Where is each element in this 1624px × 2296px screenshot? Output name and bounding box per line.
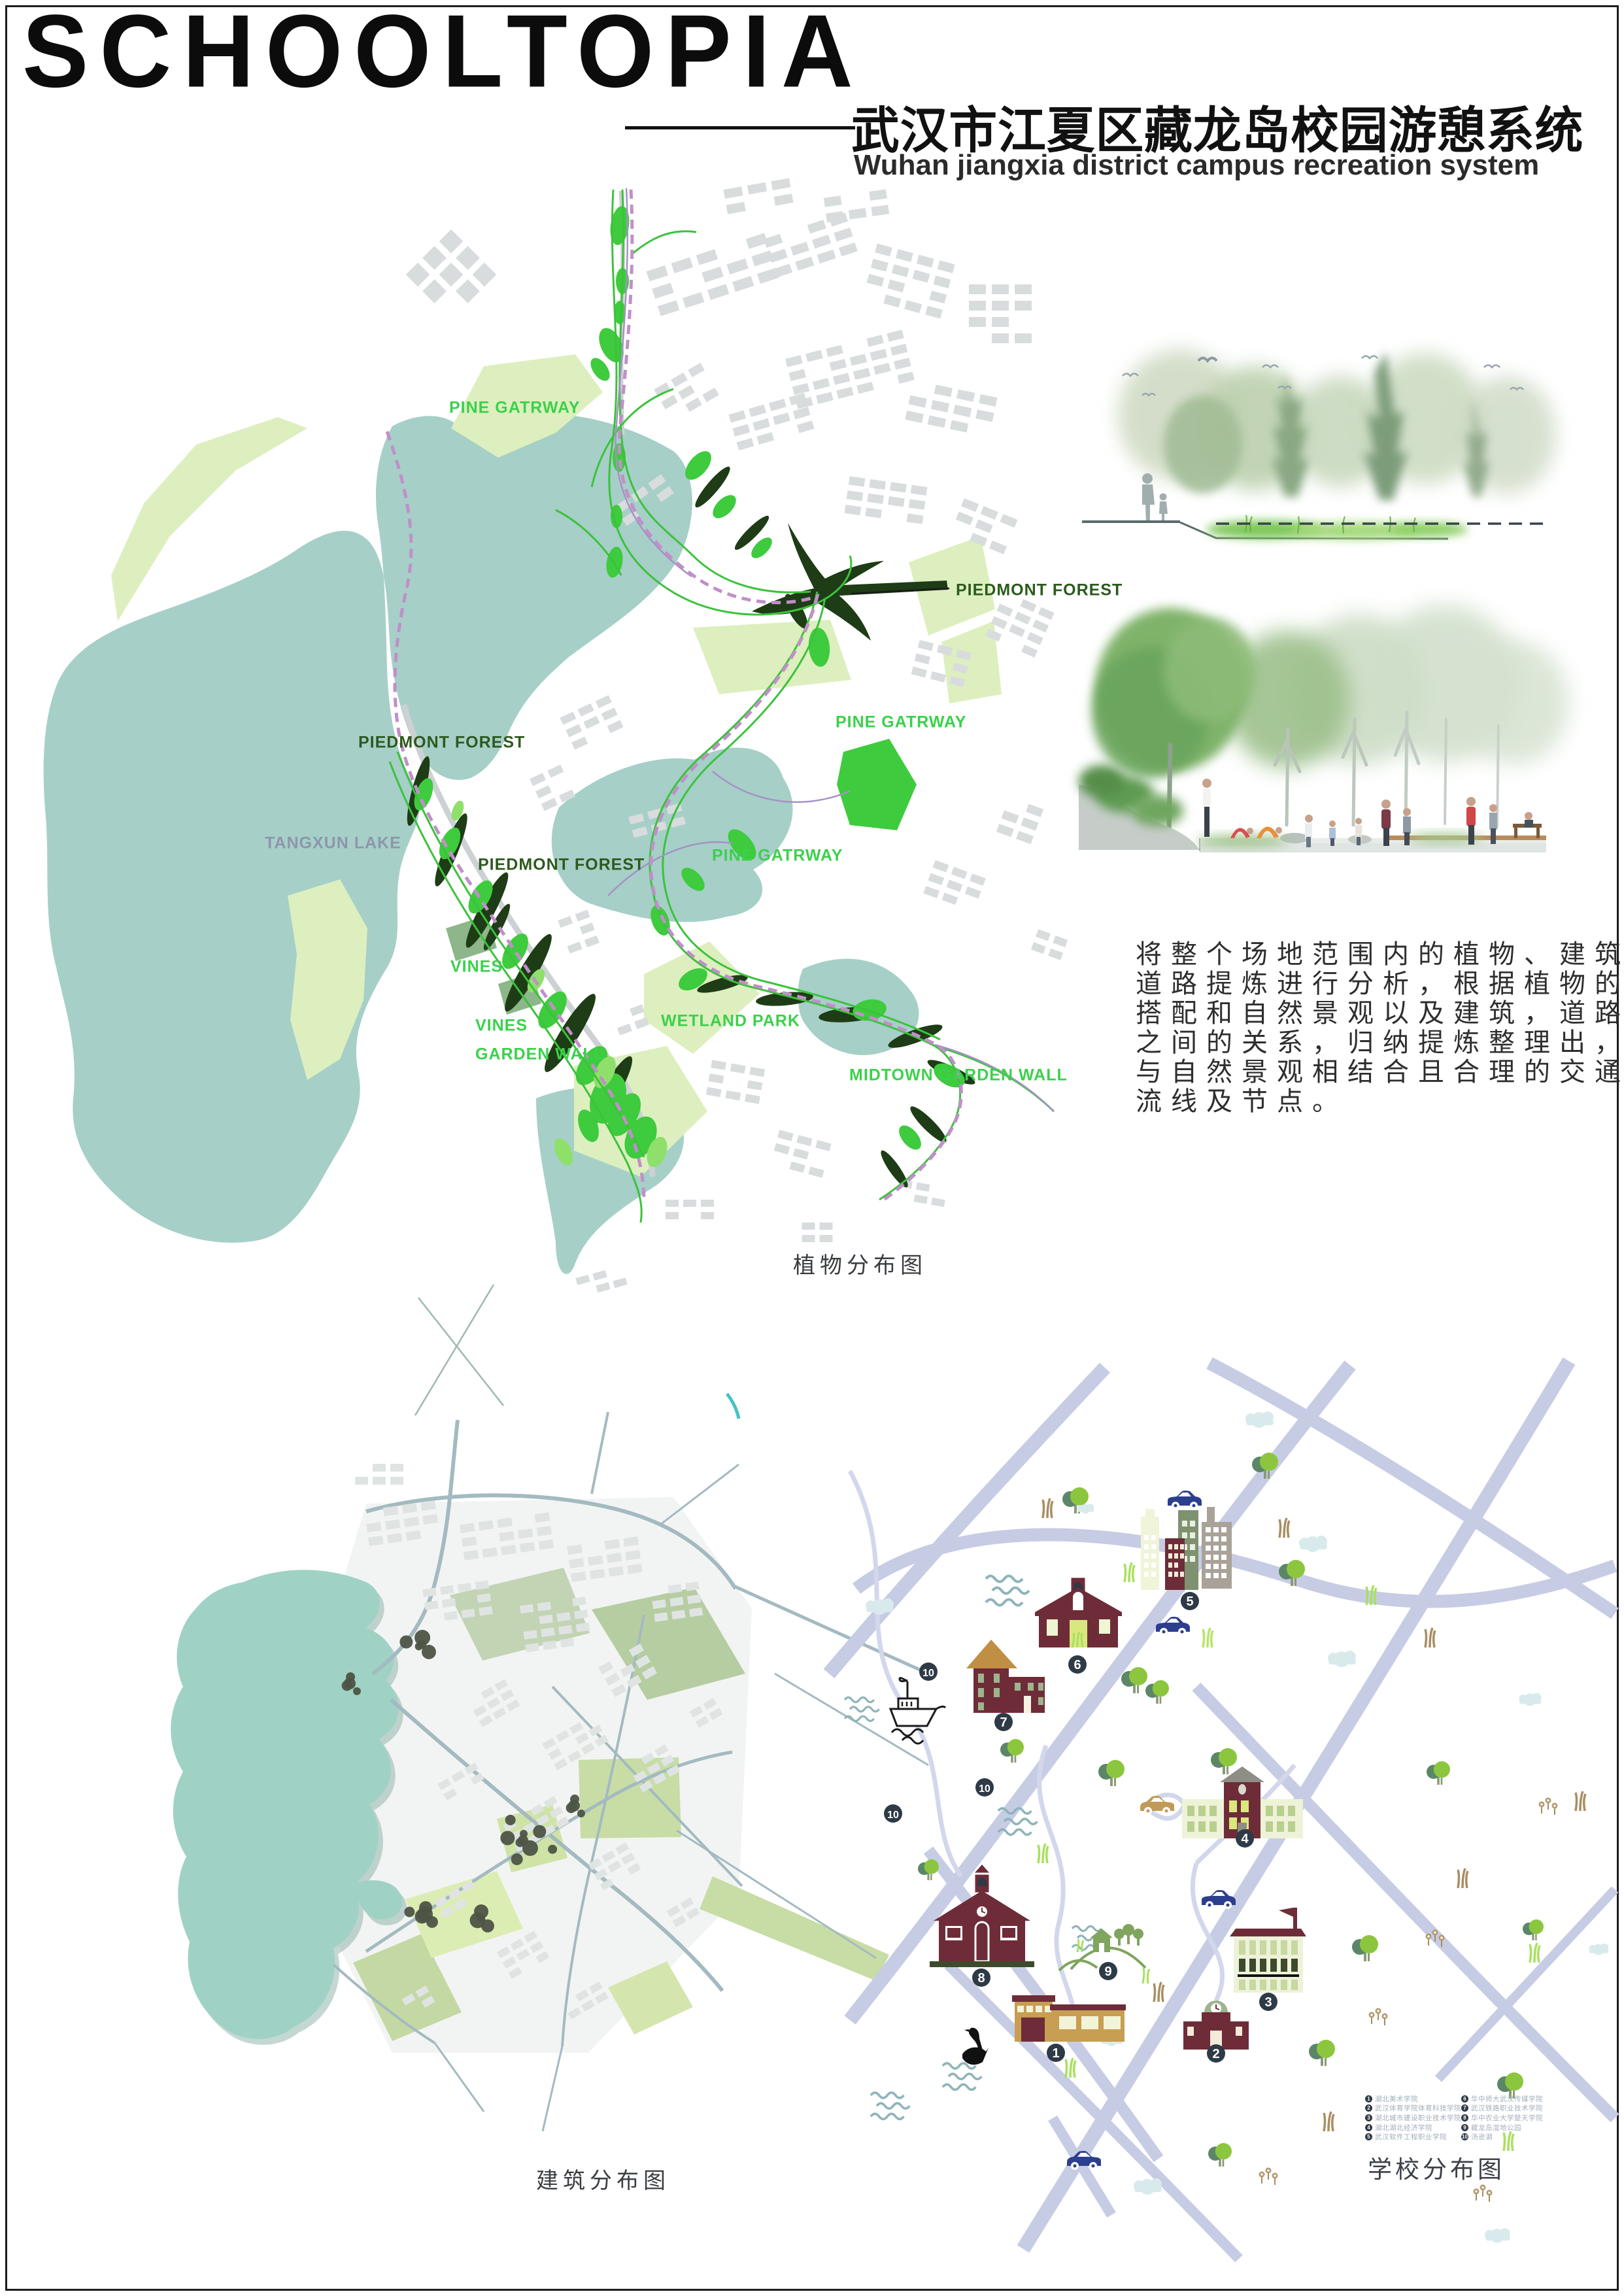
water-waves-icon bbox=[986, 1576, 1029, 1606]
school-7-icon bbox=[966, 1640, 1045, 1713]
grass-icon bbox=[1530, 1943, 1540, 1963]
map-label: MIDTOWN GARDEN WALL bbox=[849, 1066, 1068, 1085]
svg-text:10: 10 bbox=[979, 1783, 990, 1795]
svg-text:3: 3 bbox=[1264, 1995, 1272, 2010]
svg-text:6: 6 bbox=[1074, 1658, 1081, 1672]
tree-canopy bbox=[1118, 350, 1556, 500]
flower-icon bbox=[1369, 2008, 1388, 2026]
tree-icon bbox=[918, 1859, 939, 1880]
grass-icon bbox=[1154, 1982, 1164, 2002]
cloud-icon bbox=[1299, 1536, 1327, 1552]
tree-icon bbox=[1121, 1667, 1147, 1693]
section-rendering-trees bbox=[1082, 333, 1546, 536]
building-block bbox=[802, 1223, 833, 1242]
tree-icon bbox=[1208, 2143, 1232, 2167]
tree-icon bbox=[1000, 1739, 1024, 1763]
legend-item: 8华中农业大学楚天学院 bbox=[1461, 2113, 1548, 2123]
legend-item: 4湖北湖北经济学院 bbox=[1365, 2123, 1452, 2133]
building-block bbox=[969, 284, 1032, 343]
building-block bbox=[996, 797, 1043, 845]
ground-section bbox=[1082, 515, 1546, 539]
map-label: PINE GATRWAY bbox=[712, 847, 843, 866]
tree-icon bbox=[1098, 1760, 1125, 1786]
grass-icon bbox=[1066, 2058, 1075, 2078]
school-1-icon bbox=[1012, 1995, 1126, 2042]
water-waves-icon bbox=[871, 2093, 909, 2119]
tree-icon bbox=[1211, 1748, 1237, 1774]
description-line: 与自然景观相结合且合理的交通 bbox=[1136, 1058, 1593, 1087]
building-block bbox=[647, 233, 779, 316]
building-block bbox=[764, 212, 858, 277]
legend-item: 3湖北城市建设职业技术学院 bbox=[1365, 2113, 1452, 2123]
map-label: PINE GATRWAY bbox=[836, 713, 966, 732]
swan-icon bbox=[962, 2028, 989, 2065]
svg-text:2: 2 bbox=[1212, 2047, 1219, 2061]
grass-icon bbox=[1125, 1562, 1134, 1582]
perspective-rendering-park bbox=[1079, 608, 1546, 866]
building-block bbox=[1031, 929, 1068, 960]
map-label: PIEDMONT FOREST bbox=[358, 734, 525, 752]
school-distribution-map: 123456789101010 bbox=[811, 1360, 1619, 2210]
grass-icon bbox=[1279, 1518, 1289, 1538]
school-6-icon bbox=[1035, 1577, 1122, 1647]
cloud-icon bbox=[1134, 2178, 1162, 2195]
school-2-icon bbox=[1183, 2001, 1249, 2050]
school-legend: 1湖北美术学院2武汉体育学院体育科技学院3湖北城市建设职业技术学院4湖北湖北经济… bbox=[1365, 2094, 1548, 2142]
map-label: WETLAND PARK bbox=[661, 1012, 800, 1031]
building-block bbox=[728, 393, 814, 450]
flower-icon bbox=[1474, 2185, 1493, 2203]
svg-text:10: 10 bbox=[887, 1810, 899, 1821]
building-block bbox=[723, 178, 793, 214]
grass-icon bbox=[1043, 1498, 1053, 1518]
map-label: PIEDMONT FOREST bbox=[478, 856, 645, 875]
description-text: 将整个场地范围内的植物、建筑、道路提炼进行分析，根据植物的搭配和自然景观以及建筑… bbox=[1136, 940, 1593, 1117]
cloud-icon bbox=[1519, 1693, 1541, 1706]
grass-icon bbox=[1203, 1628, 1213, 1647]
city-towers-icon bbox=[1141, 1507, 1232, 1590]
tree-icon bbox=[1523, 1919, 1544, 1940]
building-block bbox=[355, 1464, 403, 1485]
car-icon bbox=[1140, 1796, 1174, 1815]
map-label: TANGXUN LAKE bbox=[265, 834, 401, 853]
lake-shapes bbox=[44, 414, 919, 1274]
building-block bbox=[575, 1266, 627, 1297]
cloud-icon bbox=[1328, 1651, 1356, 1667]
school-3-icon bbox=[1230, 1908, 1306, 1993]
cloud-icon bbox=[1485, 2228, 1510, 2243]
svg-text:5: 5 bbox=[1186, 1595, 1193, 1609]
legend-item: 7武汉铁路职业技术学院 bbox=[1461, 2104, 1548, 2114]
cloud-icon bbox=[1245, 1411, 1274, 1428]
building-block bbox=[560, 695, 623, 750]
car-icon bbox=[1168, 1491, 1202, 1510]
flower-icon bbox=[1259, 2168, 1278, 2186]
car-icon bbox=[1202, 1890, 1236, 1909]
grass-icon bbox=[1038, 1844, 1048, 1863]
building-block bbox=[666, 1200, 714, 1219]
building-block bbox=[923, 860, 986, 912]
map-label: VINES bbox=[450, 958, 503, 977]
building-block bbox=[862, 244, 955, 319]
people-silhouettes bbox=[1142, 473, 1168, 523]
building-block bbox=[824, 190, 889, 223]
building-block bbox=[905, 380, 997, 437]
building-block bbox=[613, 1004, 649, 1035]
tree-icon bbox=[1352, 1935, 1378, 1961]
svg-text:1: 1 bbox=[1052, 2046, 1059, 2061]
description-line: 之间的关系，归纳提炼整理出， bbox=[1136, 1028, 1593, 1058]
description-line: 搭配和自然景观以及建筑，道路 bbox=[1136, 999, 1593, 1028]
water-waves-icon bbox=[943, 2063, 981, 2090]
school-map-caption: 学校分布图 bbox=[1368, 2150, 1505, 2185]
tree-icon bbox=[1309, 2040, 1335, 2066]
plant-distribution-map bbox=[26, 177, 1092, 1425]
building-block bbox=[845, 476, 928, 524]
map-label: GARDEN WALL bbox=[475, 1045, 604, 1064]
svg-text:4: 4 bbox=[1241, 1832, 1249, 1846]
building-map-caption: 建筑分布图 bbox=[536, 2163, 670, 2195]
legend-item: 1湖北美术学院 bbox=[1365, 2094, 1452, 2104]
building-block bbox=[558, 909, 600, 953]
flower-icon bbox=[1539, 1798, 1558, 1815]
title-rule bbox=[625, 126, 855, 129]
grass-icon bbox=[1366, 1585, 1376, 1605]
grass-icon bbox=[1425, 1628, 1435, 1647]
description-line: 道路提炼进行分析，根据植物的 bbox=[1136, 970, 1593, 999]
building-block bbox=[770, 1130, 831, 1177]
description-line: 将整个场地范围内的植物、建筑、 bbox=[1136, 940, 1593, 970]
legend-item: 6华中师大武汉传媒学院 bbox=[1461, 2094, 1548, 2104]
description-line: 流线及节点。 bbox=[1136, 1087, 1593, 1117]
cloud-icon bbox=[1589, 1944, 1608, 1955]
svg-text:7: 7 bbox=[1000, 1715, 1007, 1730]
bench-icon bbox=[1513, 812, 1542, 838]
page-title: SCHOOLTOPIA bbox=[22, 0, 864, 111]
tree-icon bbox=[1427, 1761, 1450, 1785]
svg-text:8: 8 bbox=[977, 1971, 985, 1985]
svg-text:10: 10 bbox=[922, 1668, 934, 1679]
building-block bbox=[706, 1060, 765, 1104]
legend-item: 9藏龙岛湿地公园 bbox=[1461, 2123, 1548, 2133]
grass-icon bbox=[1324, 2112, 1334, 2131]
svg-text:9: 9 bbox=[1104, 1965, 1111, 1979]
building-block bbox=[406, 229, 497, 320]
poster-page: SCHOOLTOPIA 武汉市江夏区藏龙岛校园游憩系统 Wuhan jiangx… bbox=[0, 0, 1624, 2296]
water-waves-icon bbox=[845, 1697, 879, 1721]
plant-map-caption: 植物分布图 bbox=[793, 1247, 927, 1279]
map-label: VINES bbox=[475, 1017, 528, 1036]
gray-mound bbox=[1079, 765, 1200, 850]
map-label: PINE GATRWAY bbox=[449, 399, 580, 418]
legend-item: 10汤逊湖 bbox=[1461, 2132, 1548, 2142]
tree-icon bbox=[1145, 1680, 1169, 1704]
legend-item: 5武汉软件工程职业学院 bbox=[1365, 2132, 1452, 2142]
legend-item: 2武汉体育学院体育科技学院 bbox=[1365, 2104, 1452, 2114]
grass-icon bbox=[1576, 1791, 1585, 1811]
ship-icon bbox=[890, 1678, 945, 1744]
map-label: PIEDMONT FOREST bbox=[956, 581, 1123, 600]
grass-icon bbox=[1458, 1868, 1468, 1888]
